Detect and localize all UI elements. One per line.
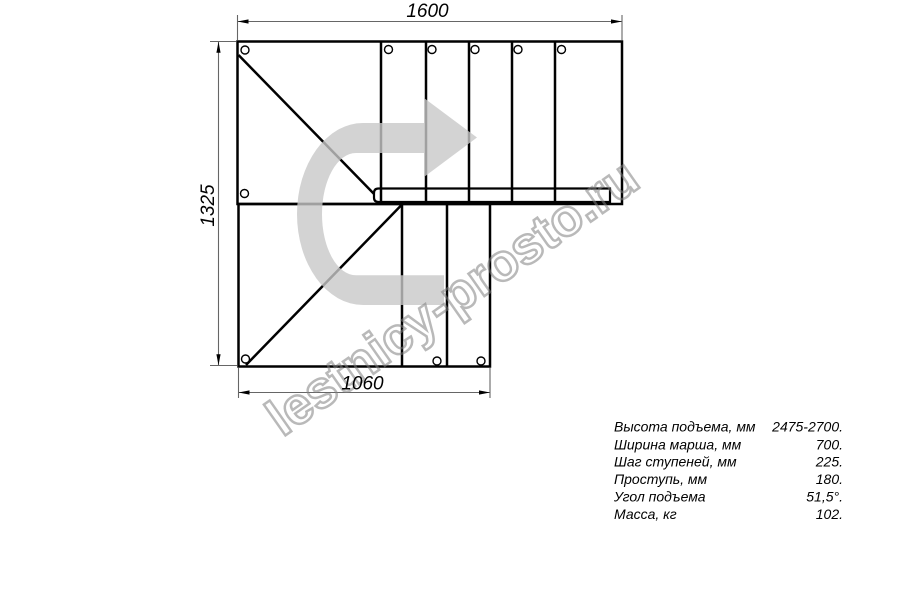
svg-text:700.: 700. [816, 436, 843, 452]
svg-text:Угол подъема: Угол подъема [613, 489, 706, 505]
svg-text:51,5°.: 51,5°. [806, 489, 843, 505]
svg-text:2475-2700.: 2475-2700. [771, 419, 843, 435]
svg-text:225.: 225. [815, 454, 843, 470]
svg-text:1060: 1060 [341, 374, 384, 395]
svg-text:Ширина марша, мм: Ширина марша, мм [614, 436, 742, 452]
svg-text:180.: 180. [816, 471, 843, 487]
svg-text:Шаг ступеней, мм: Шаг ступеней, мм [614, 454, 737, 470]
svg-text:1325: 1325 [198, 184, 219, 227]
svg-text:102.: 102. [816, 506, 843, 522]
svg-text:1600: 1600 [406, 1, 449, 22]
svg-text:Масса, кг: Масса, кг [614, 506, 677, 522]
svg-text:Высота подъема, мм: Высота подъема, мм [614, 419, 756, 435]
svg-text:Проступь, мм: Проступь, мм [614, 471, 708, 487]
